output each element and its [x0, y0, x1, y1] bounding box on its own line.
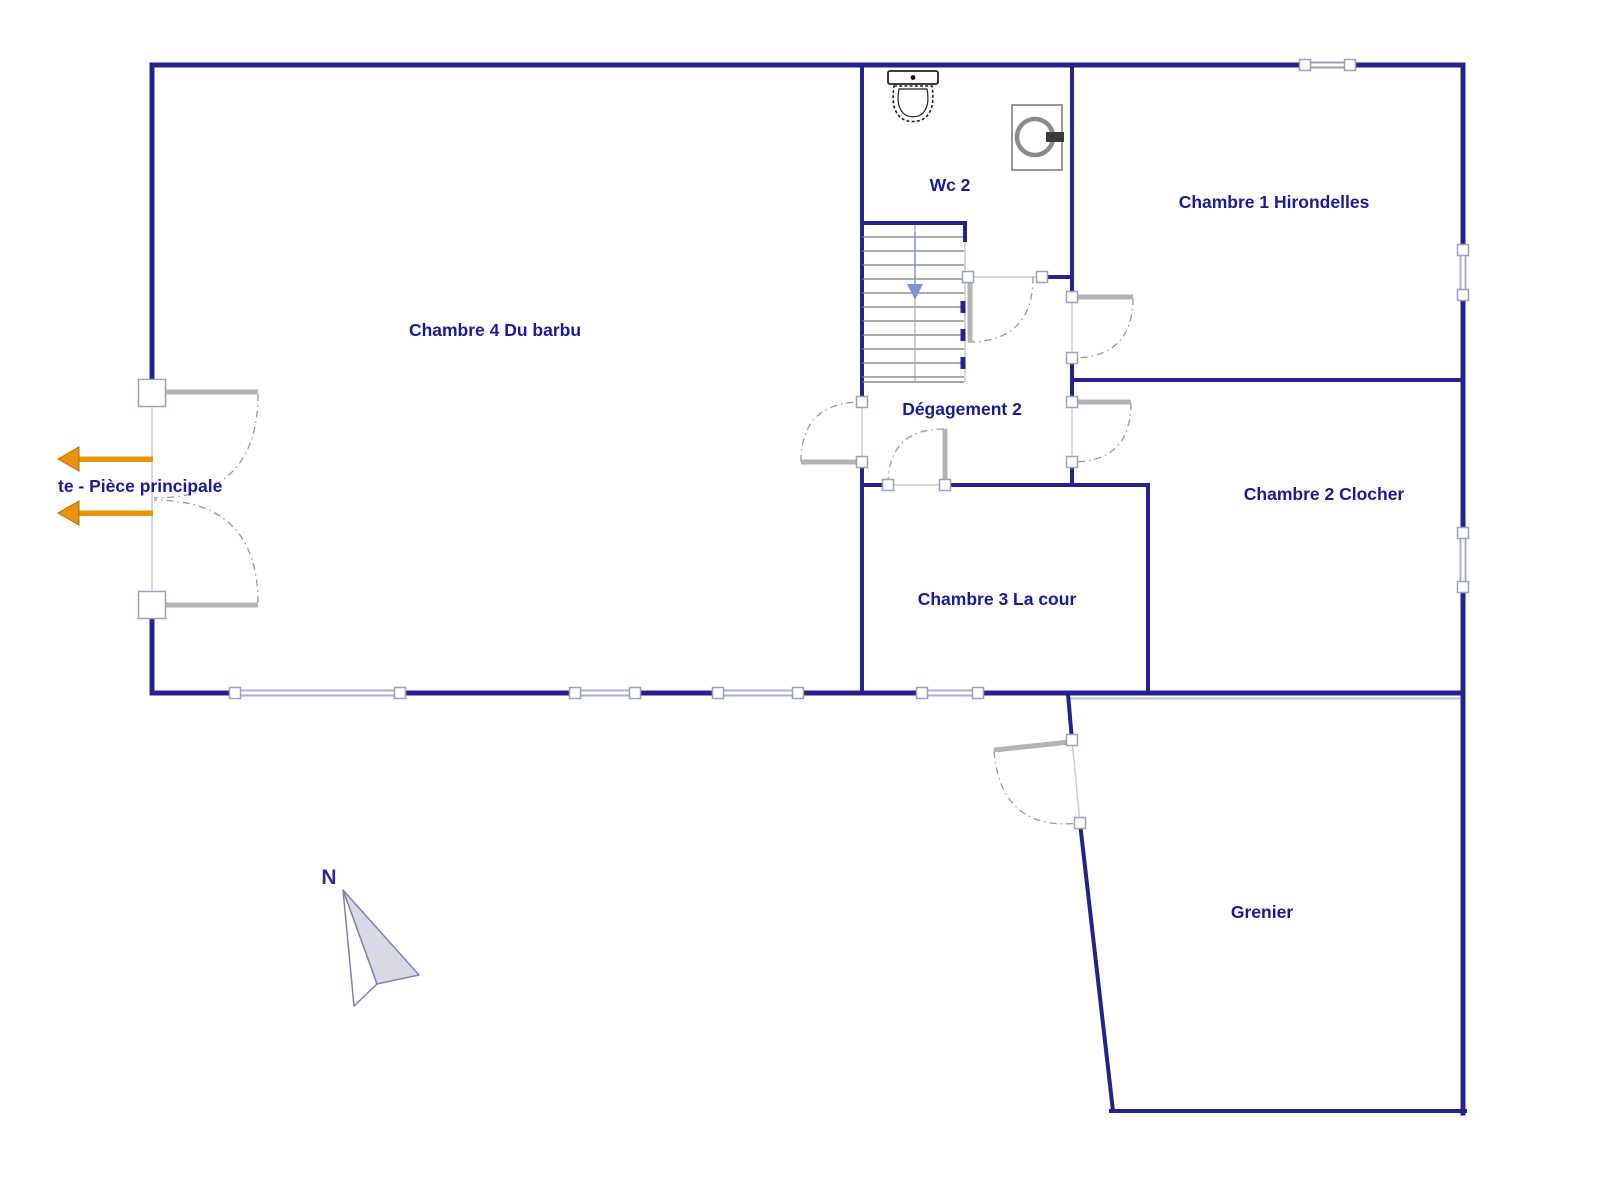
room-label-chambre1: Chambre 1 Hirondelles — [1179, 192, 1370, 212]
room-label-wc2: Wc 2 — [930, 175, 971, 195]
window-bottom-1 — [241, 691, 394, 696]
stairs-down-arrow-icon — [907, 232, 923, 300]
window-top — [1310, 63, 1345, 68]
door-chambre3 — [883, 429, 951, 491]
washing-machine-icon — [1012, 105, 1064, 170]
exit-arrow-icon — [58, 501, 153, 525]
door-chambre4 — [801, 397, 868, 468]
toilet-icon — [888, 71, 938, 122]
entry-label: te - Pièce principale — [58, 476, 223, 496]
exit-arrow-icon — [58, 447, 153, 471]
window-bottom-2 — [581, 691, 629, 696]
room-label-grenier: Grenier — [1231, 902, 1293, 922]
room-label-chambre4: Chambre 4 Du barbu — [409, 320, 581, 340]
room-label-degagement2: Dégagement 2 — [902, 399, 1022, 419]
north-arrow-icon: N — [321, 866, 419, 1006]
room-label-chambre3: Chambre 3 La cour — [918, 589, 1077, 609]
window-bottom-3 — [724, 691, 792, 696]
door-openings — [152, 277, 1080, 823]
room-label-chambre2: Chambre 2 Clocher — [1244, 484, 1405, 504]
staircase-down — [862, 223, 965, 382]
floor-plan-page: N Chambre 4 Du barbu Wc 2 Chambre 1 Hiro… — [0, 0, 1600, 1177]
floor-plan: N Chambre 4 Du barbu Wc 2 Chambre 1 Hiro… — [0, 0, 1600, 1177]
window-right-1 — [1461, 256, 1466, 289]
door-wc2 — [963, 272, 1048, 343]
window-right-2 — [1461, 539, 1466, 581]
entry-double-door — [139, 380, 259, 619]
door-grenier — [994, 735, 1086, 829]
compass-label: N — [321, 866, 336, 889]
window-bottom-4 — [928, 691, 972, 696]
door-chambre2 — [1067, 397, 1132, 468]
door-chambre1 — [1067, 292, 1134, 364]
